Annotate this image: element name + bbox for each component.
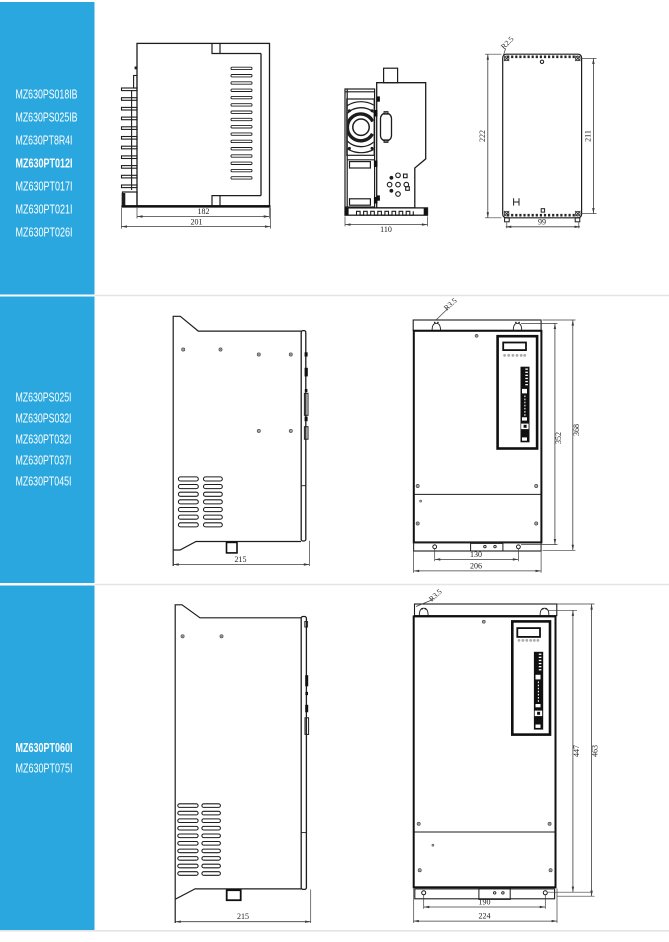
svg-text:463: 463 xyxy=(591,745,600,757)
svg-text:215: 215 xyxy=(235,555,247,564)
svg-text:224: 224 xyxy=(479,912,491,921)
svg-text:130: 130 xyxy=(470,550,482,559)
svg-text:MZ630PT021I: MZ630PT021I xyxy=(16,202,73,217)
svg-text:MZ630PS025IB: MZ630PS025IB xyxy=(16,110,78,125)
svg-text:190: 190 xyxy=(479,898,491,907)
svg-text:MZ630PT037I: MZ630PT037I xyxy=(16,453,72,468)
svg-text:368: 368 xyxy=(572,424,581,436)
svg-text:215: 215 xyxy=(237,912,249,921)
svg-text:99: 99 xyxy=(538,218,546,227)
svg-text:MZ630PT060I: MZ630PT060I xyxy=(16,740,73,755)
svg-text:447: 447 xyxy=(572,745,581,757)
svg-text:MZ630PT8R4I: MZ630PT8R4I xyxy=(16,133,73,148)
svg-text:MZ630PT026I: MZ630PT026I xyxy=(16,225,73,240)
svg-text:MZ630PT045I: MZ630PT045I xyxy=(16,474,72,489)
svg-text:352: 352 xyxy=(554,432,563,444)
svg-text:MZ630PS018IB: MZ630PS018IB xyxy=(16,87,78,102)
svg-text:MZ630PT012I: MZ630PT012I xyxy=(16,156,73,171)
svg-text:MZ630PS032I: MZ630PS032I xyxy=(16,410,72,425)
svg-text:222: 222 xyxy=(478,130,487,142)
svg-text:MZ630PS025I: MZ630PS025I xyxy=(16,389,72,404)
svg-text:MZ630PT032I: MZ630PT032I xyxy=(16,432,72,447)
svg-text:211: 211 xyxy=(583,130,592,142)
svg-text:MZ630PT017I: MZ630PT017I xyxy=(16,179,73,194)
svg-text:110: 110 xyxy=(380,225,392,234)
svg-text:MZ630PT075I: MZ630PT075I xyxy=(16,761,73,776)
svg-text:201: 201 xyxy=(191,217,203,226)
svg-text:182: 182 xyxy=(198,207,210,216)
svg-text:206: 206 xyxy=(470,561,482,570)
